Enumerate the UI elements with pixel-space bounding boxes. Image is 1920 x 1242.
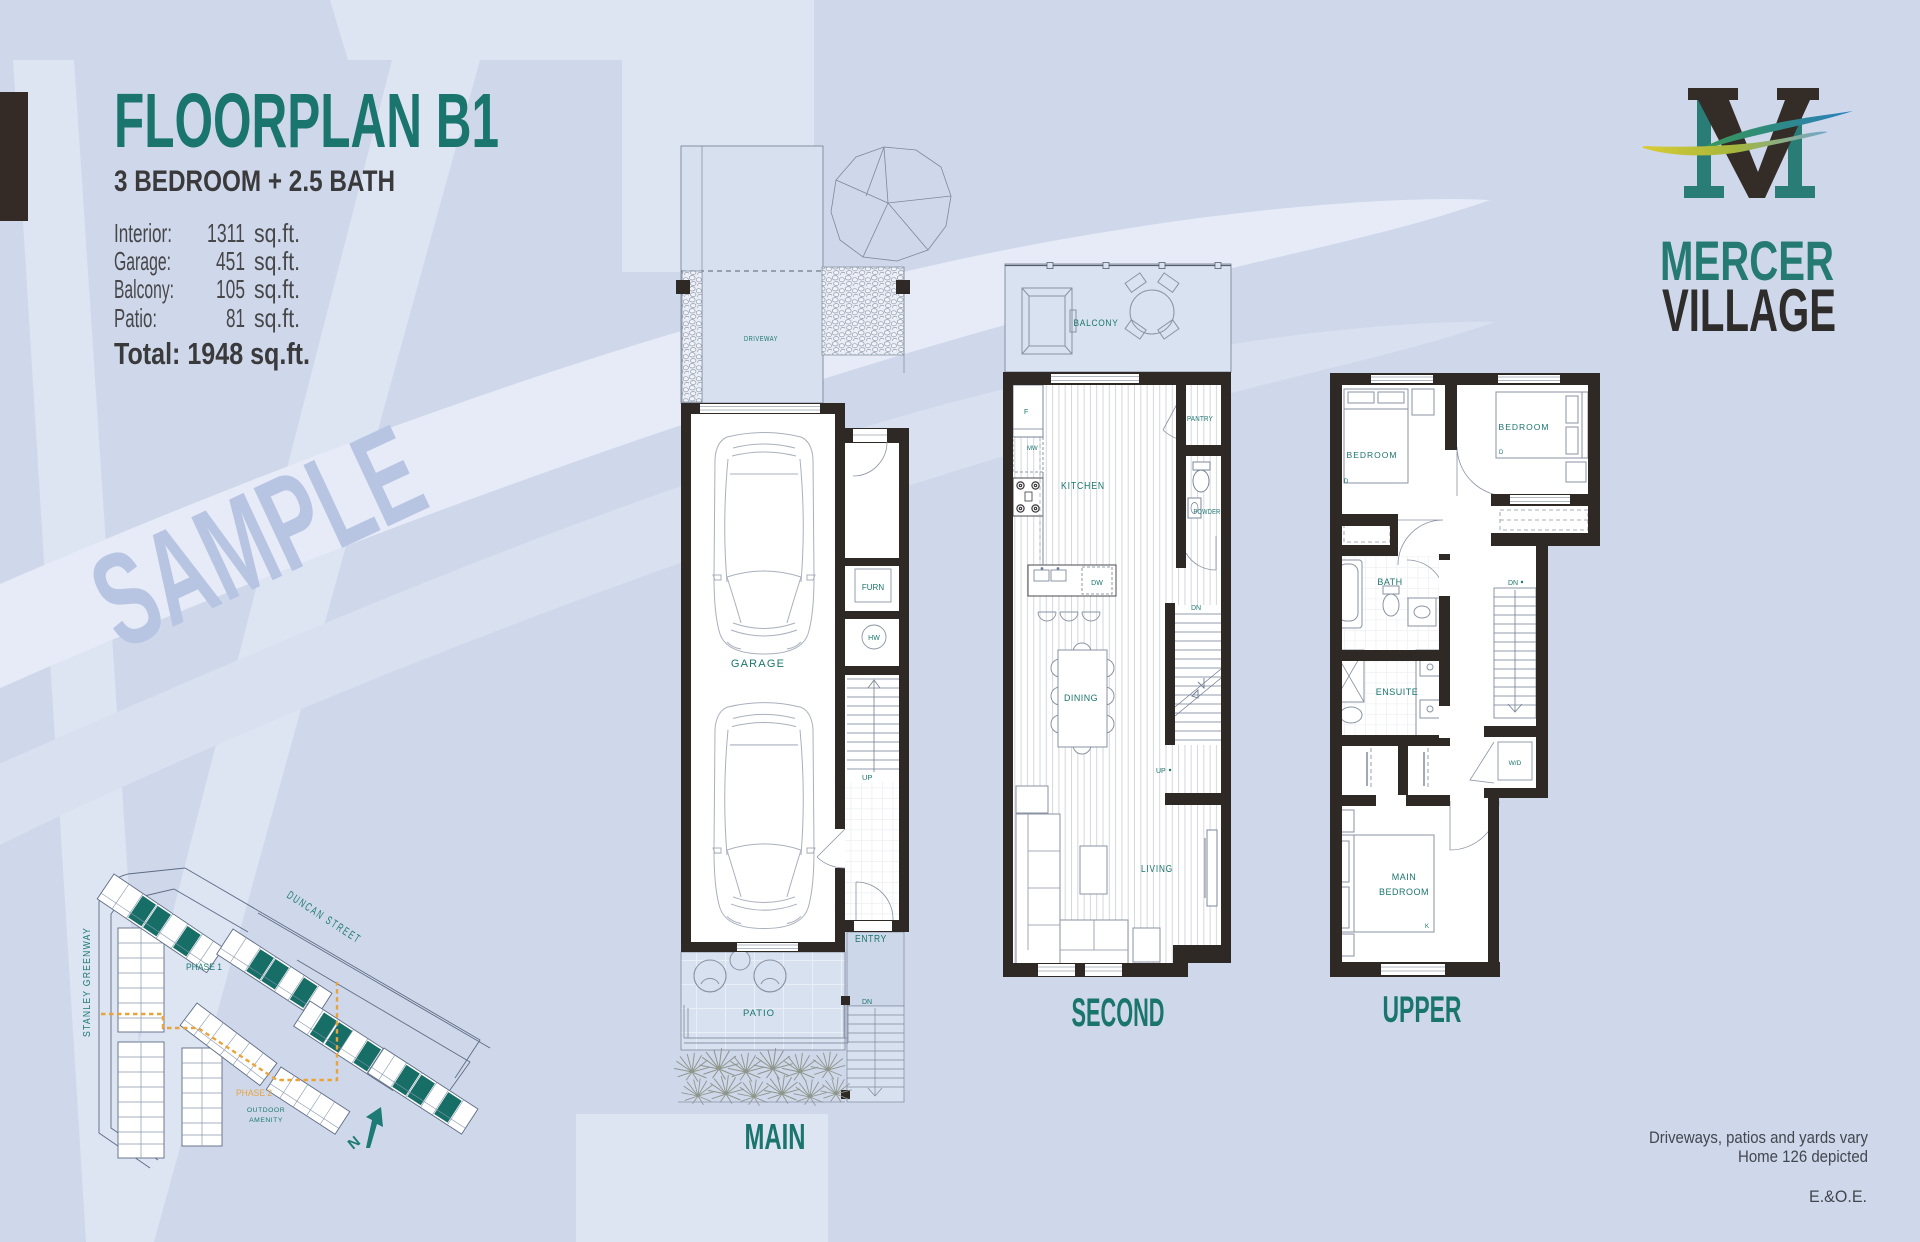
svg-text:PANTRY: PANTRY	[1187, 416, 1213, 423]
svg-text:BEDROOM: BEDROOM	[1499, 422, 1550, 432]
svg-text:FURN: FURN	[862, 583, 884, 592]
svg-text:105: 105	[216, 274, 245, 304]
svg-text:D: D	[1499, 450, 1504, 456]
svg-text:DRIVEWAY: DRIVEWAY	[744, 336, 778, 343]
svg-text:Driveways, patios and yards va: Driveways, patios and yards vary	[1649, 1128, 1868, 1147]
svg-text:BEDROOM: BEDROOM	[1379, 887, 1429, 897]
svg-text:PHASE 1: PHASE 1	[186, 962, 222, 973]
svg-text:ENSUITE: ENSUITE	[1376, 687, 1419, 697]
svg-text:SECOND: SECOND	[1072, 991, 1165, 1035]
svg-text:STANLEY GREENWAY: STANLEY GREENWAY	[81, 927, 93, 1037]
svg-text:BATH: BATH	[1377, 577, 1402, 587]
svg-text:DN: DN	[1508, 580, 1518, 587]
svg-text:BALCONY: BALCONY	[1074, 318, 1119, 329]
svg-text:sq.ft.: sq.ft.	[254, 246, 300, 276]
svg-text:PHASE 2: PHASE 2	[236, 1088, 272, 1099]
svg-text:BEDROOM: BEDROOM	[1347, 450, 1398, 460]
svg-text:Home 126 depicted: Home 126 depicted	[1738, 1147, 1868, 1166]
svg-text:DN: DN	[1191, 605, 1201, 612]
svg-text:PATIO: PATIO	[743, 1008, 775, 1019]
svg-text:KITCHEN: KITCHEN	[1061, 481, 1105, 492]
svg-text:DW: DW	[1091, 580, 1103, 587]
svg-text:LIVING: LIVING	[1141, 864, 1173, 875]
svg-text:3 BEDROOM + 2.5 BATH: 3 BEDROOM + 2.5 BATH	[114, 165, 395, 198]
svg-text:DINING: DINING	[1064, 693, 1098, 704]
svg-text:UP: UP	[1156, 768, 1166, 775]
svg-text:sq.ft.: sq.ft.	[254, 218, 300, 248]
svg-text:OUTDOOR: OUTDOOR	[247, 1107, 285, 1114]
svg-text:POWDER: POWDER	[1194, 509, 1221, 516]
svg-text:MAIN: MAIN	[1392, 872, 1417, 882]
svg-text:AMENITY: AMENITY	[249, 1117, 283, 1124]
svg-text:81: 81	[226, 303, 245, 333]
svg-text:Balcony:: Balcony:	[114, 274, 174, 304]
svg-text:DN: DN	[862, 999, 872, 1006]
svg-text:W/D: W/D	[1509, 760, 1522, 767]
svg-text:sq.ft.: sq.ft.	[254, 303, 300, 333]
svg-text:K: K	[1425, 924, 1429, 930]
svg-text:sq.ft.: sq.ft.	[254, 274, 300, 304]
svg-text:VILLAGE: VILLAGE	[1662, 277, 1836, 344]
svg-text:Total: 1948 sq.ft.: Total: 1948 sq.ft.	[114, 336, 310, 371]
svg-text:MW: MW	[1027, 446, 1038, 452]
svg-text:UP: UP	[862, 773, 872, 782]
svg-text:451: 451	[216, 246, 245, 276]
svg-text:UPPER: UPPER	[1383, 989, 1462, 1030]
svg-text:1311: 1311	[207, 218, 245, 248]
svg-text:F: F	[1024, 409, 1028, 416]
svg-text:Patio:: Patio:	[114, 303, 157, 333]
svg-text:HW: HW	[868, 635, 880, 642]
svg-text:ENTRY: ENTRY	[855, 934, 887, 945]
svg-text:FLOORPLAN B1: FLOORPLAN B1	[114, 78, 499, 164]
svg-text:Garage:: Garage:	[114, 246, 171, 276]
svg-text:Interior:: Interior:	[114, 218, 172, 248]
svg-text:MAIN: MAIN	[745, 1116, 806, 1157]
svg-text:E.&O.E.: E.&O.E.	[1809, 1187, 1867, 1206]
svg-text:D: D	[1344, 479, 1349, 485]
svg-text:GARAGE: GARAGE	[731, 658, 785, 670]
